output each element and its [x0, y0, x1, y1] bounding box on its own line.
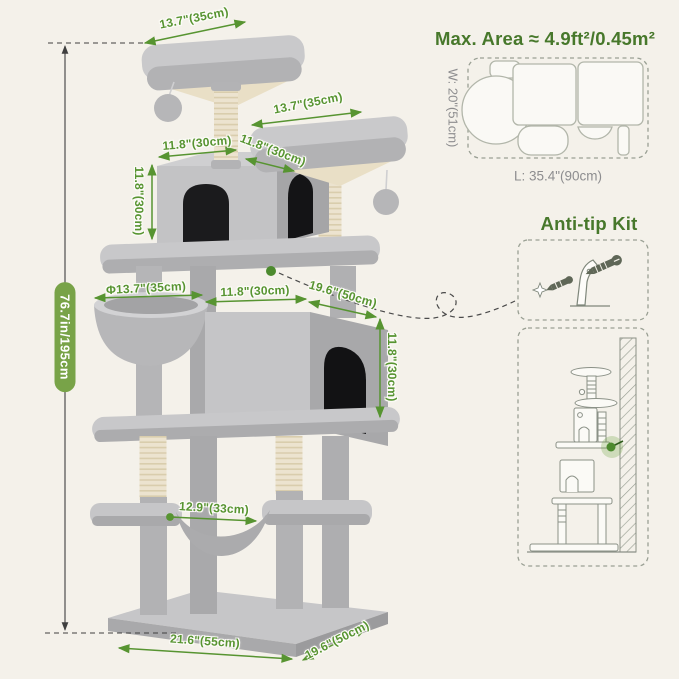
- dim-big-condo-height: 11.8"(30cm): [385, 332, 399, 401]
- footprint-sketch: [462, 58, 648, 158]
- anti-tip-title: Anti-tip Kit: [541, 213, 638, 235]
- top-condo-opening: [183, 184, 229, 244]
- pompom-toy: [154, 94, 182, 122]
- anti-tip-connector: [266, 266, 515, 318]
- cat-tree-illustration: [90, 34, 410, 657]
- total-height-badge: 76.7in/195cm: [55, 282, 76, 392]
- anti-tip-point: [266, 266, 276, 276]
- footprint-length-label: L: 35.4"(90cm): [514, 169, 602, 184]
- pompom-toy-2: [373, 189, 399, 215]
- anti-tip-attach-dot: [607, 443, 616, 452]
- max-area-title: Max. Area ≈ 4.9ft²/0.45m²: [435, 28, 655, 50]
- top-condo-side-opening: [288, 174, 313, 240]
- anti-tip-bracket-sketch: [518, 240, 648, 320]
- sparkle-icon: [533, 283, 547, 297]
- mini-cat-tree: [530, 368, 618, 552]
- product-dimension-diagram: 13.7"(35cm) 13.7"(35cm) 11.8"(30cm) 11.8…: [0, 0, 679, 679]
- anti-tip-placement-sketch: [518, 328, 648, 566]
- footprint-width-label: W: 20"(51cm): [446, 69, 461, 148]
- dim-top-condo-height: 11.8"(30cm): [132, 166, 146, 235]
- dim-big-condo-width: 11.8"(30cm): [220, 283, 290, 299]
